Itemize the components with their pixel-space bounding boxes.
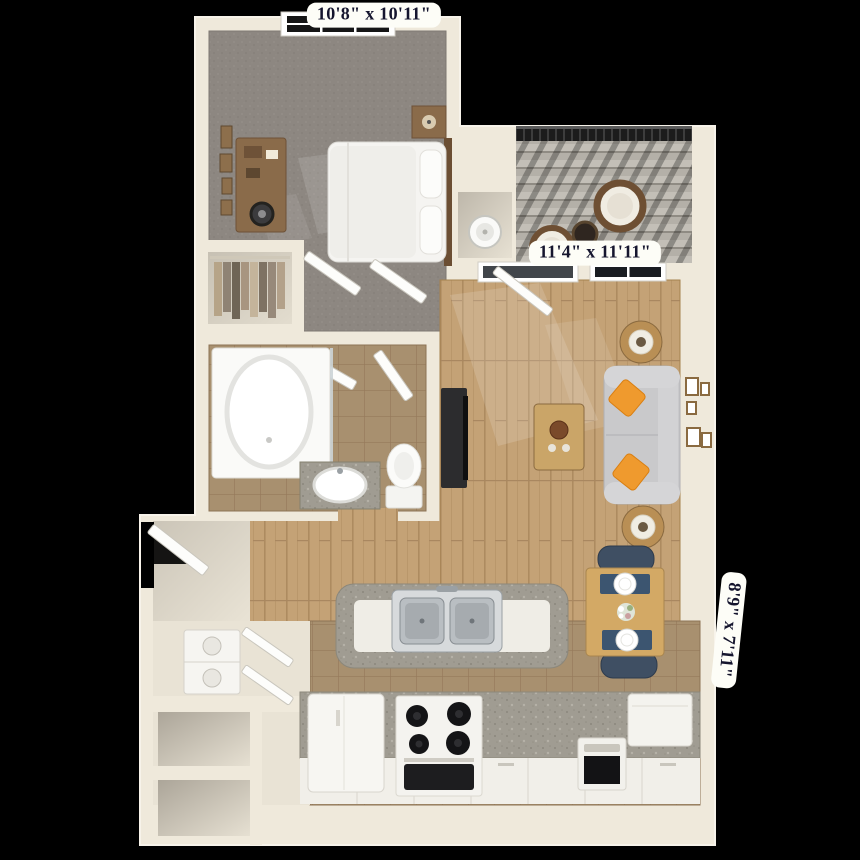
living-room-dimension-label: 11'4" x 11'11" — [529, 241, 661, 266]
bedroom-dimension-label: 10'8" x 10'11" — [307, 3, 441, 28]
island-sink — [392, 586, 502, 652]
sofa — [604, 366, 680, 504]
dishwasher — [628, 694, 692, 746]
washer-dryer — [184, 630, 240, 694]
refrigerator — [308, 694, 384, 792]
side-table-lamp — [620, 321, 662, 363]
dining-table — [586, 568, 664, 656]
floorplan-svg — [0, 0, 860, 860]
tv-console — [441, 388, 468, 488]
side-table-lamp — [622, 506, 664, 548]
toilet — [386, 444, 422, 508]
desk — [236, 138, 286, 232]
range-stove — [396, 696, 482, 796]
living-room-window — [590, 263, 666, 281]
balcony-railing — [516, 126, 692, 141]
coffee-table — [534, 404, 584, 470]
storage-closet — [153, 712, 262, 836]
nightstand — [412, 106, 446, 138]
walk-in-closet — [196, 240, 304, 335]
vanity-sink — [300, 462, 380, 509]
water-heater-closet — [458, 192, 512, 258]
patio-chair — [597, 183, 643, 229]
water-heater — [469, 216, 501, 248]
floorplan-render: 10'8" x 10'11" 11'4" x 11'11" 8'9" x 7'1… — [0, 0, 860, 860]
wall-oven — [578, 738, 626, 790]
bathtub — [212, 348, 333, 478]
wall-art — [220, 126, 232, 215]
kitchen-island — [336, 584, 568, 668]
bed — [328, 138, 452, 266]
table-centerpiece — [617, 603, 635, 621]
